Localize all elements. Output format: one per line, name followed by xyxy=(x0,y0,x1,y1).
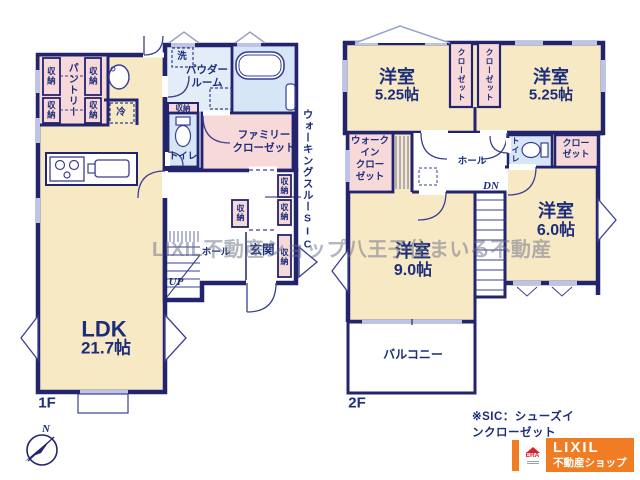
bay-window-icon xyxy=(165,315,186,361)
room-label-balcony: バルコニー xyxy=(383,348,443,363)
bay-window-icon xyxy=(598,199,616,241)
lixil-wordmark: LIXIL 不動産ショップ xyxy=(546,438,634,472)
floorplan-page: パントリー 収納 収納 収納 収納 冷 洗 パウダー ルーム 収納 トイレ ファ… xyxy=(0,0,640,480)
toilet2-icon xyxy=(522,143,548,158)
toilet1-icon xyxy=(176,117,191,147)
gable-icon xyxy=(235,32,265,43)
storage-label: 収納 xyxy=(279,177,289,195)
bay-window-icon xyxy=(21,316,38,360)
storage-label: 収納 xyxy=(176,103,191,112)
room-label-bedroom-ne: 洋室 xyxy=(533,66,569,89)
room-label-powder-room: パウダー ルーム xyxy=(186,64,228,90)
storage-label: 収納 xyxy=(46,101,57,120)
floor-label-1f: 1F xyxy=(38,395,56,414)
stairs-down-label: DN xyxy=(483,180,499,194)
floor-label-2f: 2F xyxy=(348,395,366,414)
room-label-toilet-1f: トイレ xyxy=(169,151,198,163)
gable-icon xyxy=(169,32,199,43)
storage-label: 収納 xyxy=(235,204,245,222)
room-area-ldk: 21.7帖 xyxy=(81,337,131,358)
watermark: LIXIL不動産ショップ八王子住まいる不動産 xyxy=(152,233,512,262)
closet-label: クローゼット xyxy=(456,48,466,102)
sic-note: ※SIC：シューズインクローゼット xyxy=(472,408,584,440)
walk-through-sic-label: ウォーキングスルーSIC xyxy=(300,109,313,252)
bathtub-icon xyxy=(236,52,284,79)
room-label-bedroom-nw: 洋室 xyxy=(379,66,415,89)
room-area-bedroom-e: 6.0帖 xyxy=(537,221,575,241)
kitchen-island-icon xyxy=(46,153,137,185)
storage-label: 収納 xyxy=(88,67,99,86)
room-label-wic: ウォーク イン クロー ゼット xyxy=(351,135,389,183)
room-label-bedroom-e: 洋室 xyxy=(538,200,574,223)
room-label-toilet-2f: トイレ xyxy=(510,137,520,164)
room-area-bedroom-ne: 5.25帖 xyxy=(529,87,573,106)
room-area-bedroom-nw: 5.25帖 xyxy=(375,87,419,106)
gable-icon xyxy=(355,26,450,43)
room-label-hall-2f: ホール xyxy=(458,156,487,168)
closet-label: クローゼット xyxy=(484,48,494,102)
stairs-up-label: UP xyxy=(169,276,184,290)
bath-counter-icon xyxy=(286,84,295,110)
lixil-logo: ERA LIXIL 不動産ショップ xyxy=(512,438,634,472)
room-area-bedroom-s: 9.0帖 xyxy=(394,261,432,281)
washbasin-icon xyxy=(109,65,129,89)
logo-bar xyxy=(512,440,519,471)
room-label-family-closet: ファミリー クローゼット xyxy=(233,129,296,155)
storage-label: 収納 xyxy=(46,67,57,86)
compass-icon xyxy=(24,435,57,465)
closet-label-2f: クロー ゼット xyxy=(562,138,589,161)
storage-label: 収納 xyxy=(279,203,289,221)
storage-label: 収納 xyxy=(88,101,99,120)
era-badge: ERA xyxy=(523,440,542,471)
compass-north-label: N xyxy=(42,423,50,437)
laundry-label: 洗 xyxy=(177,51,187,63)
fridge-label: 冷 xyxy=(116,107,126,119)
room-label-pantry: パントリー xyxy=(65,63,78,118)
